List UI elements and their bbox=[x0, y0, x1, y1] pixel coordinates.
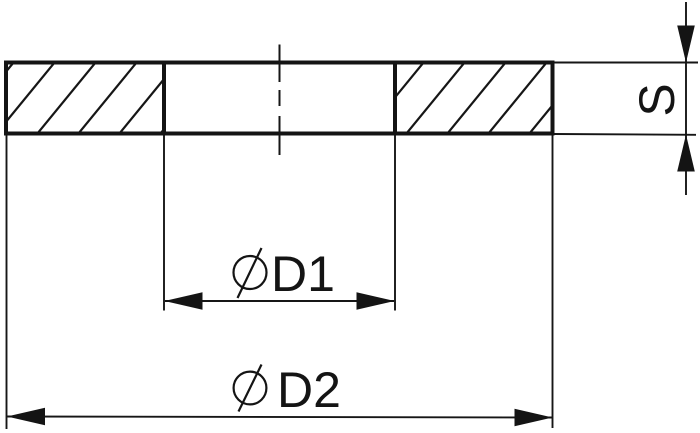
svg-text:D2: D2 bbox=[277, 362, 341, 418]
svg-text:S: S bbox=[629, 83, 685, 116]
svg-text:D1: D1 bbox=[271, 246, 335, 302]
